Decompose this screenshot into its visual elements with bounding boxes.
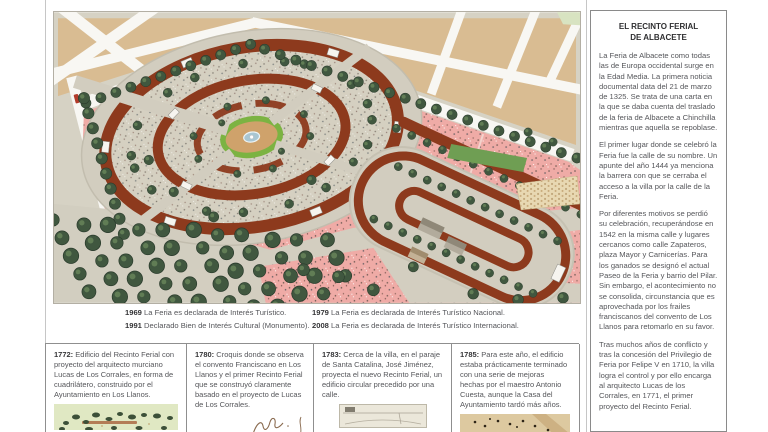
timeline-left-column: 1969 La Feria es declarada de Interés Tu… [125,306,310,332]
sketch-1783-plan [322,404,443,428]
sketch-1780-croquis [195,414,305,432]
timeline-year: 1969 [125,308,142,317]
timeline-entry: 1969 La Feria es declarada de Interés Tu… [125,306,310,319]
milestone-text: 1785: Para este año, el edificio estaba … [460,350,569,410]
page-right-rule [586,0,587,432]
milestone-1785: 1785: Para este año, el edificio estaba … [451,344,577,432]
sidebar-paragraph: Tras muchos años de conflicto y tras la … [599,340,718,412]
aerial-view-frame [53,11,581,304]
timeline-text: La Feria es declarada de Interés Turísti… [331,308,505,317]
sidebar-panel: EL RECINTO FERIAL DE ALBACETE La Feria d… [590,10,727,432]
milestone-1780: 1780: Croquis donde se observa el conven… [186,344,313,432]
timeline-year: 2008 [312,321,329,330]
sidebar-paragraph: El primer lugar donde se celebró la Feri… [599,140,718,202]
timeline-entry: 2008 La Feria es declarada de Interés Tu… [312,319,519,332]
aerial-view-recinto-ferial-illustration [54,12,580,303]
sidebar-paragraph: La Feria de Albacete como todas las de E… [599,51,718,133]
sketch-1772-plan [54,404,178,430]
milestone-text: 1783: Cerca de la villa, en el paraje de… [322,350,443,400]
timeline-text: Declarado Bien de Interés Cultural (Monu… [144,321,309,330]
timeline-right-column: 1979 La Feria es declarada de Interés Tu… [312,306,519,332]
sidebar-title: EL RECINTO FERIAL DE ALBACETE [599,21,718,43]
timeline-year: 1979 [312,308,329,317]
timeline-text: La Feria es declarada de Interés Turísti… [144,308,286,317]
sidebar-paragraph: Por diferentes motivos se perdió su cele… [599,209,718,333]
sketch-1785-plan [460,414,569,432]
exhibition-panel-page: { "colors": { "building_brown": "#8d3a1d… [0,0,768,432]
milestone-text: 1772: Edificio del Recinto Ferial con pr… [54,350,178,400]
timeline: 1969 La Feria es declarada de Interés Tu… [0,304,586,343]
milestone-1772: 1772: Edificio del Recinto Ferial con pr… [46,344,186,432]
milestones-table: 1772: Edificio del Recinto Ferial con pr… [45,344,580,432]
milestone-text: 1780: Croquis donde se observa el conven… [195,350,305,410]
timeline-entry: 1979 La Feria es declarada de Interés Tu… [312,306,519,319]
timeline-text: La Feria es declarada de Interés Turísti… [331,321,519,330]
timeline-year: 1991 [125,321,142,330]
timeline-entry: 1991 Declarado Bien de Interés Cultural … [125,319,310,332]
milestone-1783: 1783: Cerca de la villa, en el paraje de… [313,344,451,432]
